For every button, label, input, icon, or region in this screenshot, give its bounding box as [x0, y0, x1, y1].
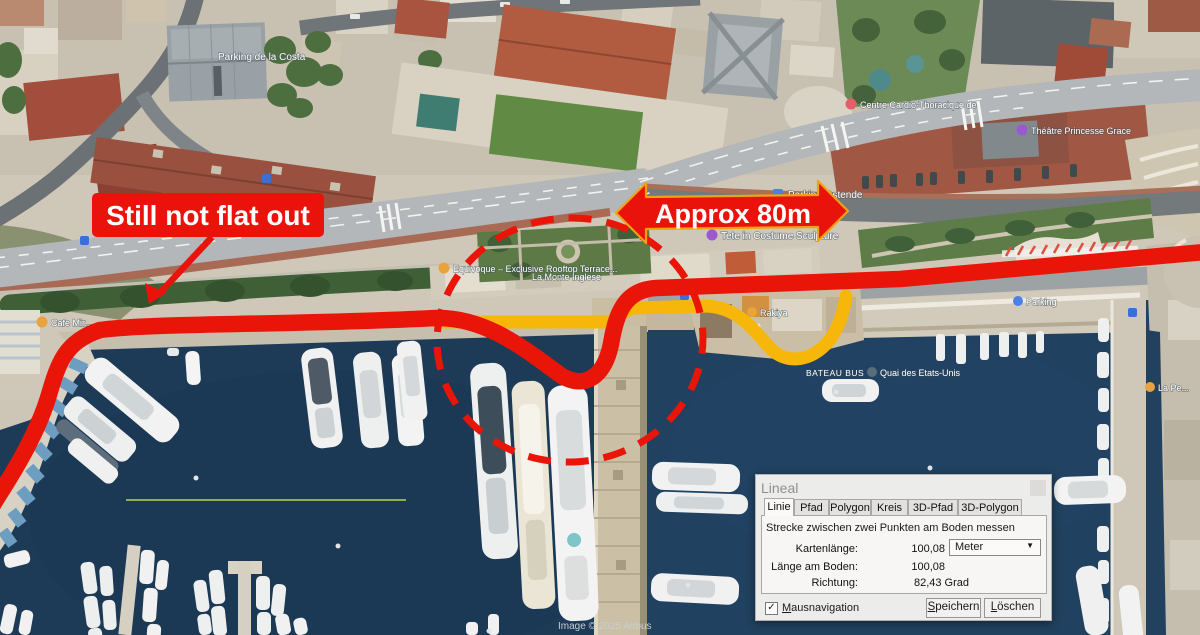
svg-text:Quai des Etats-Unis: Quai des Etats-Unis	[880, 368, 961, 378]
svg-text:Théâtre Princesse Grace: Théâtre Princesse Grace	[1031, 126, 1131, 136]
svg-text:La Monte Inglese: La Monte Inglese	[532, 272, 601, 282]
svg-text:Centre Cardio-Thoracique de: Centre Cardio-Thoracique de	[860, 100, 977, 110]
svg-text:Rakiya: Rakiya	[760, 308, 788, 318]
svg-text:Cafe Mir...: Cafe Mir...	[51, 318, 92, 328]
svg-text:Parking de la Costa: Parking de la Costa	[218, 52, 306, 63]
svg-text:Still not flat out: Still not flat out	[106, 200, 310, 231]
svg-text:Parking: Parking	[1026, 297, 1057, 307]
svg-text:Approx 80m: Approx 80m	[655, 199, 811, 229]
svg-text:Image © 2025 Airbus: Image © 2025 Airbus	[558, 621, 652, 632]
svg-text:La Pe...: La Pe...	[1158, 383, 1189, 393]
svg-text:BATEAU BUS: BATEAU BUS	[806, 368, 864, 378]
